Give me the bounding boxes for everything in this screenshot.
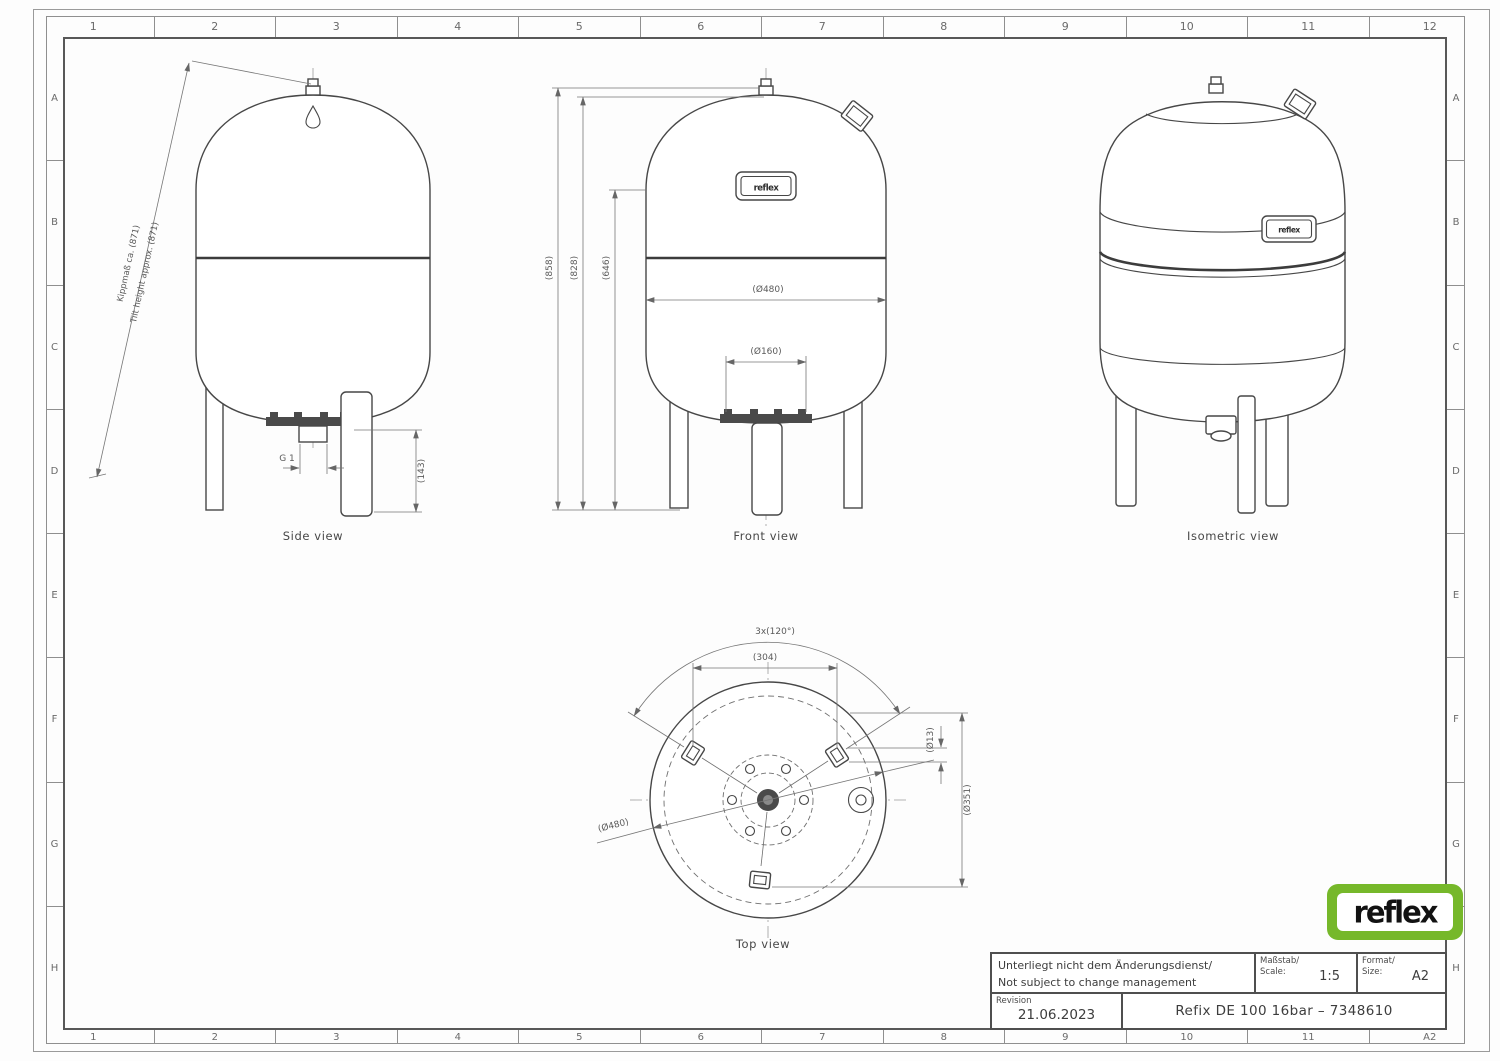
- grid-ref-label: G: [46, 783, 63, 907]
- grid-ref-label: E: [1447, 534, 1465, 658]
- hole-diameter-label: (Ø13): [925, 727, 936, 753]
- middle-leg: [1238, 396, 1255, 513]
- reflex-plate-text: reflex: [754, 184, 780, 194]
- grid-ref-label: 11: [1248, 1030, 1370, 1044]
- grid-ref-label: 2: [155, 1030, 277, 1044]
- grid-ref-label: 8: [884, 1030, 1006, 1044]
- grid-ref-label: A: [1447, 37, 1465, 161]
- scale-label-de: Maßstab/: [1260, 956, 1356, 967]
- reflex-logo-text: reflex: [1354, 894, 1437, 930]
- grid-ref-label: C: [46, 286, 63, 410]
- isometric-view-caption: Isometric view: [1187, 529, 1279, 543]
- grid-ref-label: 7: [762, 16, 884, 37]
- change-note-de: Unterliegt nicht dem Änderungsdienst/: [998, 958, 1248, 975]
- grid-ref-label: 11: [1248, 16, 1370, 37]
- leg-height-dimension-label: (143): [417, 459, 427, 483]
- grid-ref-label: 1: [33, 1030, 155, 1044]
- format-value: A2: [1412, 969, 1429, 984]
- bottom-fitting: [1206, 416, 1236, 441]
- top-view-caption: Top view: [735, 937, 790, 951]
- grid-ref-label: B: [46, 161, 63, 285]
- scale-value: 1:5: [1319, 969, 1340, 984]
- grid-ref-label: E: [46, 534, 63, 658]
- side-view-caption: Side view: [283, 529, 343, 543]
- grid-ref-label: 3: [276, 1030, 398, 1044]
- revision-date: 21.06.2023: [992, 1007, 1121, 1023]
- feet-spacing-label: (304): [753, 653, 777, 663]
- vessel-drawing: Kippmaß ca. (871) Tilt height approx. (8…: [63, 37, 1447, 1030]
- top-valve: [1209, 77, 1223, 93]
- grid-ref-label: 1: [33, 16, 155, 37]
- grid-ref-label: 5: [519, 1030, 641, 1044]
- grid-ref-label: A: [46, 37, 63, 161]
- grid-ruler-right: ABCDEFGH: [1447, 37, 1465, 1030]
- grid-ref-label: 8: [884, 16, 1006, 37]
- title-block: Unterliegt nicht dem Änderungsdienst/ No…: [990, 952, 1447, 1030]
- format-cell: Format/ Size: A2: [1358, 954, 1445, 992]
- grid-ruler-bottom: 1234567891011A2: [33, 1030, 1490, 1044]
- scale-cell: Maßstab/ Scale: 1:5: [1256, 954, 1358, 992]
- grid-ref-label: 6: [641, 1030, 763, 1044]
- grid-ref-label: 9: [1005, 16, 1127, 37]
- thread-dimension: G 1: [279, 444, 344, 474]
- grid-ref-label: 9: [1005, 1030, 1127, 1044]
- grid-ref-label: F: [1447, 658, 1465, 782]
- thread-dimension-label: G 1: [279, 454, 295, 464]
- revision-label: Revision: [992, 994, 1121, 1007]
- feet-circle-label: (Ø351): [962, 784, 973, 815]
- grid-ref-label: 7: [762, 1030, 884, 1044]
- grid-ref-label: 10: [1127, 1030, 1249, 1044]
- grid-ruler-left: ABCDEFGH: [46, 37, 63, 1030]
- format-label-en: Size:: [1362, 967, 1445, 978]
- grid-ref-label: 3: [276, 16, 398, 37]
- grid-ref-label: 5: [519, 16, 641, 37]
- reflex-plate-text: reflex: [1278, 226, 1300, 235]
- grid-ref-label: 6: [641, 16, 763, 37]
- grid-ref-label: B: [1447, 161, 1465, 285]
- foot: [749, 871, 771, 889]
- grid-ref-label: A2: [1370, 1030, 1491, 1044]
- grid-ruler-top: 123456789101112: [33, 16, 1490, 37]
- change-note: Unterliegt nicht dem Änderungsdienst/ No…: [992, 954, 1256, 992]
- reflex-logo-inner: reflex: [1337, 893, 1453, 931]
- format-label-de: Format/: [1362, 956, 1445, 967]
- drawing-sheet: 123456789101112 1234567891011A2 ABCDEFGH…: [0, 0, 1500, 1061]
- grid-ref-label: D: [1447, 410, 1465, 534]
- reflex-plate: reflex: [1262, 216, 1316, 242]
- center-connection: [752, 423, 782, 515]
- top-valve: [759, 79, 773, 95]
- grid-ref-label: 4: [398, 1030, 520, 1044]
- top-view: (Ø480) 3x(120°) (304): [597, 627, 973, 951]
- total-height-label: (858): [545, 256, 555, 280]
- grid-ref-label: D: [46, 410, 63, 534]
- front-view-caption: Front view: [733, 529, 798, 543]
- feet-angle-label: 3x(120°): [755, 627, 795, 637]
- scale-label-en: Scale:: [1260, 967, 1356, 978]
- grid-ref-label: 12: [1370, 16, 1491, 37]
- revision-cell: Revision 21.06.2023: [992, 994, 1123, 1028]
- grid-ref-label: C: [1447, 286, 1465, 410]
- vessel-height-label: (828): [570, 256, 580, 280]
- reflex-plate: reflex: [736, 172, 796, 200]
- top-valve: [306, 79, 320, 95]
- front-leg: [341, 392, 372, 516]
- drawing-title: Refix DE 100 16bar – 7348610: [1123, 994, 1445, 1028]
- front-view: reflex (8: [545, 68, 886, 543]
- grid-ref-label: H: [46, 907, 63, 1030]
- lower-height-label: (646): [602, 256, 612, 280]
- grid-ref-label: 2: [155, 16, 277, 37]
- diameter-label: (Ø480): [752, 284, 783, 295]
- reflex-logo: reflex: [1327, 884, 1463, 940]
- side-view: Kippmaß ca. (871) Tilt height approx. (8…: [89, 61, 430, 543]
- grid-ref-label: 10: [1127, 16, 1249, 37]
- isometric-view: reflex Isometric view: [1100, 77, 1345, 543]
- grid-ref-label: 4: [398, 16, 520, 37]
- top-diameter-label: (Ø480): [597, 816, 630, 834]
- change-note-en: Not subject to change management: [998, 975, 1248, 992]
- grid-ref-label: F: [46, 658, 63, 782]
- base-diameter-label: (Ø160): [750, 346, 781, 357]
